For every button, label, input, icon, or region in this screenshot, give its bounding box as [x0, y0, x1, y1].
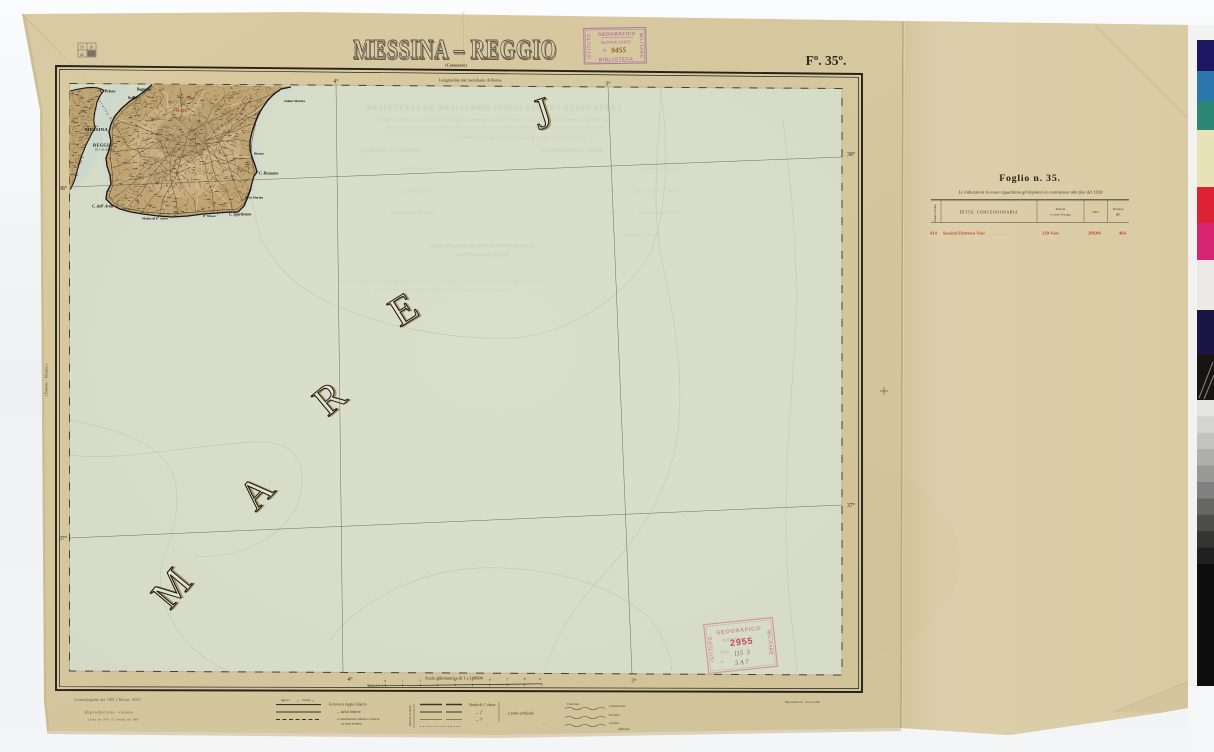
svg-text:20: 20 [90, 46, 94, 50]
svg-text:0: 0 [385, 679, 387, 683]
svg-text:. . . . . . . . . . .: . . . . . . . . . . . [990, 231, 1011, 236]
svg-text:Cabine di trasformazione . .: Cabine di trasformazione . . . . [381, 210, 435, 215]
svg-text:CARTA DELLE UTILIZZAZIONI IDRA: CARTA DELLE UTILIZZAZIONI IDRAULICHE ED … [365, 105, 621, 112]
svg-text:38°: 38° [59, 185, 68, 192]
svg-text:24: 24 [80, 53, 84, 57]
svg-text:MESSINA – REGGIO: MESSINA – REGGIO [353, 35, 557, 65]
svg-text:La potenza in HP si deduce dal: La potenza in HP si deduce dalla formula… [339, 279, 545, 284]
svg-text:IMPIANTI E CENTRALI: IMPIANTI E CENTRALI [361, 149, 420, 154]
svg-text:9455: 9455 [611, 45, 626, 54]
svg-text:Impianti ad acqua fluente . .: Impianti ad acqua fluente . . . . . . . … [607, 188, 680, 193]
svg-text:sottomarino: sottomarino [609, 704, 626, 708]
svg-text:( Palermo – Messina ): ( Palermo – Messina ) [45, 363, 49, 396]
svg-text:La presente carta riassume i d: La presente carta riassume i dati raccol… [377, 117, 612, 122]
svg-text:298,00: 298,00 [1088, 231, 1101, 236]
svg-text:Longitudine dal meridiano di R: Longitudine dal meridiano di Roma [439, 78, 502, 83]
svg-text:Impianti con serbatoio . . .: Impianti con serbatoio . . . . . . . . .… [607, 166, 680, 171]
svg-text:N.: N. [720, 660, 724, 664]
svg-text:Cromolitografia del 1885 (: Cromolitografia del 1885 ( Rivista 1920 … [74, 698, 142, 702]
svg-text:Strade di 1º classe: Strade di 1º classe [469, 703, 496, 707]
svg-text:Società Elettrica Vasi: Società Elettrica Vasi [943, 231, 985, 236]
svg-text:4°: 4° [333, 78, 339, 85]
svg-text:dei corsi d'acqua utilizzati: dei corsi d'acqua utilizzati [454, 253, 508, 258]
svg-text:nonche le linee di trasporto d: nonche le linee di trasporto di energia … [453, 135, 585, 140]
svg-text:MILITARE: MILITARE [639, 33, 644, 59]
svg-text:Fº. 35º.: Fº. 35º. [806, 53, 847, 68]
svg-text:Portata: Portata [1056, 207, 1066, 211]
svg-text:Linee a 120000 Volt . . . . .: Linee a 120000 Volt . . . . . . . [383, 166, 435, 171]
svg-text:SEGNI CONVENZIONALI: SEGNI CONVENZIONALI [541, 149, 602, 154]
svg-text:Le indicazioni in rosso riguar: Le indicazioni in rosso riguardano gli i… [958, 190, 1104, 195]
svg-text:1: 1 [402, 679, 404, 683]
svg-text:MESSINA: MESSINA [85, 127, 108, 132]
svg-text:Potenza: Potenza [1113, 207, 1124, 211]
svg-text:Bianco: Bianco [254, 152, 264, 156]
svg-text:Stazioni: Stazioni [281, 699, 290, 702]
svg-text:9: 9 [539, 677, 541, 681]
svg-text:GEOGRAFICO: GEOGRAFICO [598, 31, 636, 38]
svg-text:Tramvie su strada: Tramvie su strada [408, 705, 412, 727]
svg-text:Levata del 1870 - 71 rivedu: Levata del 1870 - 71 riveduta nel 1908 [88, 718, 139, 722]
svg-text:O 416: O 416 [176, 108, 187, 113]
svg-text:N.: N. [603, 48, 607, 53]
svg-text:5 A 7: 5 A 7 [735, 659, 750, 667]
svg-text:4: 4 [454, 678, 456, 682]
svg-text:6: 6 [489, 678, 491, 682]
svg-text:Melito di Pº Salvo: Melito di Pº Salvo [142, 217, 168, 221]
svg-text:DITTA CONCESSIONARIA: DITTA CONCESSIONARIA [960, 211, 1019, 215]
svg-text:120-Vasi: 120-Vasi [1042, 231, 1059, 236]
svg-text:Le portate indicate si riferis: Le portate indicate si riferiscono alle … [429, 244, 535, 249]
svg-text:C. dell' Armi: C. dell' Armi [92, 204, 114, 209]
svg-text:Ferrovie a doppio binario: Ferrovie a doppio binario [328, 703, 367, 707]
svg-text:Riproduzione vietata: Riproduzione vietata [85, 710, 133, 715]
svg-text:Bagnara: Bagnara [137, 87, 150, 91]
svg-text:Saline·Marina: Saline·Marina [284, 99, 305, 103]
svg-text:a fondo artificiale: a fondo artificiale [508, 712, 534, 716]
svg-text:C. Bruzzano: C. Bruzzano [259, 172, 279, 176]
svg-text:Linee a 70000 Volt . . . . .: Linee a 70000 Volt . . . . . . . [384, 188, 435, 193]
svg-text:464: 464 [1119, 231, 1127, 236]
svg-text:3°: 3° [605, 81, 611, 88]
svg-text:HP: HP [1116, 213, 1120, 217]
svg-text:38°: 38° [847, 151, 856, 158]
svg-text:Riproduzione conces.dita: Riproduzione conces.dita [784, 700, 820, 704]
svg-text:Serbatoi in costruzione . . .: Serbatoi in costruzione . . . . . . . [603, 232, 660, 237]
svg-text:e corso d'acqua: e corso d'acqua [1050, 213, 1071, 217]
svg-text:su sede propria: su sede propria [341, 722, 362, 726]
svg-text:Funicolare: Funicolare [566, 703, 580, 706]
svg-text:3: 3 [437, 678, 439, 682]
svg-text:Centrali termoelettriche . .: Centrali termoelettriche . . . . . . . .… [608, 210, 680, 215]
svg-text:Scilla: Scilla [128, 96, 137, 100]
svg-text:7: 7 [506, 677, 508, 681]
svg-text:8: 8 [524, 677, 526, 681]
svg-text:37°: 37° [59, 535, 68, 542]
svg-text:Salto: Salto [1092, 210, 1099, 214]
svg-text:Fermate: Fermate [302, 699, 311, 702]
svg-text:Foglio n. 35.: Foglio n. 35. [999, 173, 1061, 184]
svg-text:Numero d'ordine: Numero d'ordine [934, 203, 937, 221]
svg-text:Pretura: Pretura [608, 713, 620, 717]
svg-text:. .: . . [543, 721, 546, 725]
svg-text:Bova Marina: Bova Marina [245, 196, 263, 200]
svg-text:37°: 37° [847, 502, 856, 509]
svg-text:(Catanzaro): (Catanzaro) [445, 63, 467, 68]
svg-text:3°: 3° [631, 678, 637, 685]
svg-text:confine: confine [609, 721, 619, 725]
svg-text:REGGIO: REGGIO [93, 143, 113, 148]
svg-text:C. Spartivento: C. Spartivento [229, 213, 251, 217]
svg-text:414: 414 [930, 231, 938, 236]
svg-text:ISTITUTO: ISTITUTO [586, 34, 591, 60]
svg-text:19: 19 [80, 46, 84, 50]
svg-text:DI CALABRIA: DI CALABRIA [95, 149, 115, 152]
svg-text:SEZIONE CARTE: SEZIONE CARTE [601, 40, 632, 45]
svg-text:a scartamento ridotto o tranvi: a scartamento ridotto o tranvie [337, 717, 380, 721]
svg-text:2: 2 [419, 678, 421, 682]
svg-text:C. Peloro: C. Peloro [100, 89, 116, 94]
svg-text:· BIBLIOTECA ·: · BIBLIOTECA · [595, 56, 638, 62]
svg-text:5: 5 [472, 678, 474, 682]
svg-text:4°: 4° [347, 676, 353, 683]
svg-text:Pº Mosse: Pº Mosse [203, 214, 216, 218]
svg-text:affluente: affluente [618, 727, 630, 731]
